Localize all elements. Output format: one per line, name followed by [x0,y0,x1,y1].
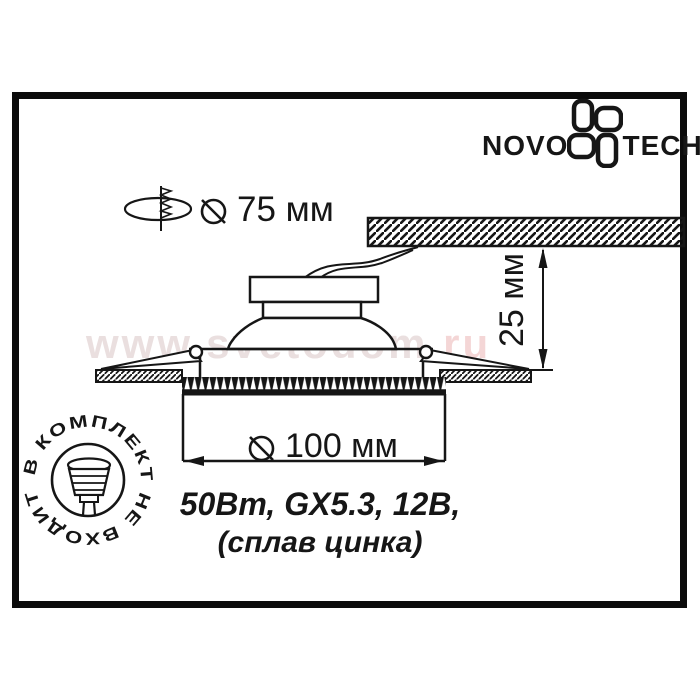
cutout-dimension-label: 75 мм [198,190,334,230]
diameter-icon [198,195,230,227]
spec-line-2: (сплав цинка) [120,526,520,560]
brand-text-left: NOVO [482,130,568,162]
height-dimension-label: 25 мм [494,240,530,360]
cutout-dimension-value: 75 мм [237,190,334,230]
diameter-dimension-value: 100 мм [285,427,398,466]
novotech-logo: NOVO TECH [482,112,700,180]
diameter-icon [246,432,278,464]
lamp-not-included-stamp: В КОМПЛЕКТ НЕ ВХОДИТ [16,405,164,553]
diagram-page: www.svetodom.ru [0,0,700,700]
watermark-main: www.svetodom [86,320,429,367]
watermark-suffix: .ru [429,320,492,367]
brand-text-right: TECH [622,130,700,162]
novotech-flower-icon [567,98,623,168]
watermark: www.svetodom.ru [86,320,491,368]
spec-line-1: 50Вт, GX5.3, 12В, [120,486,520,523]
diameter-dimension-label: 100 мм [246,427,398,466]
